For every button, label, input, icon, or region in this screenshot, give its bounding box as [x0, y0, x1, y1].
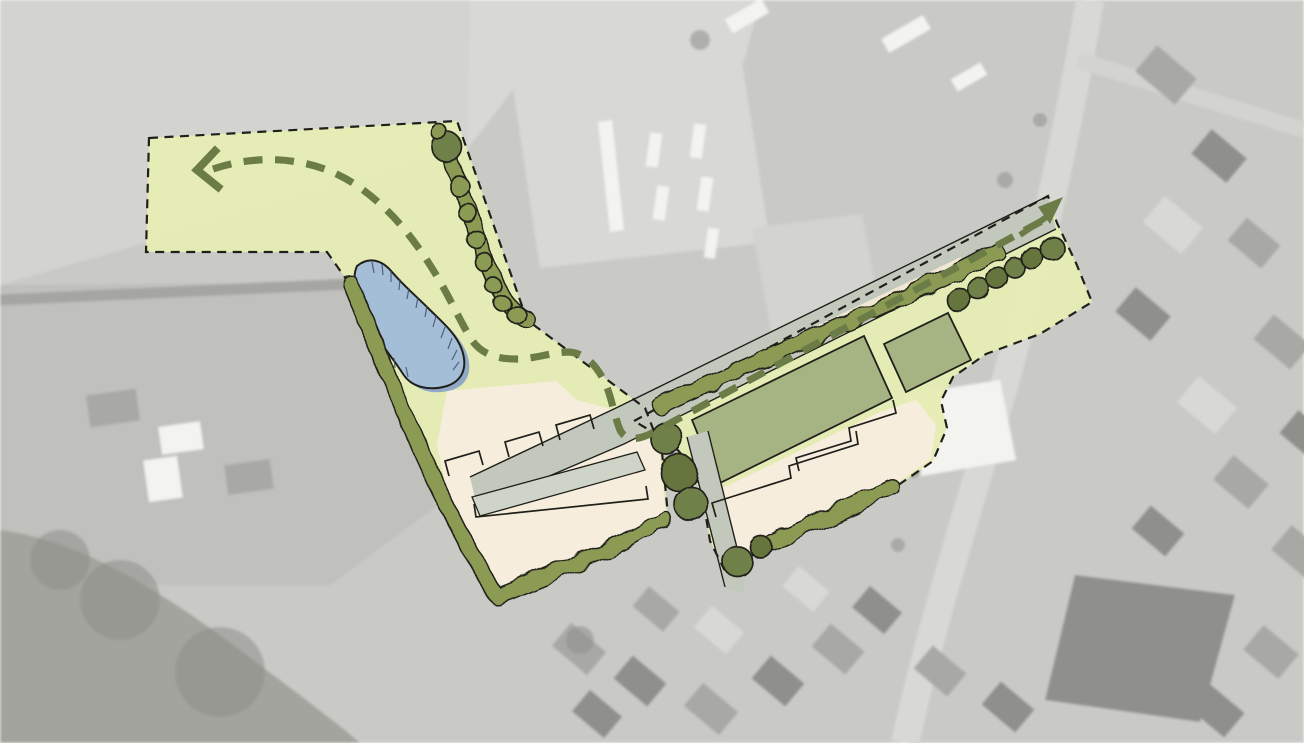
tree	[475, 253, 493, 271]
tree	[431, 124, 447, 140]
tree	[449, 176, 469, 196]
tree-branch	[722, 546, 752, 576]
tree	[494, 295, 510, 311]
tree	[485, 277, 501, 293]
tree-junction	[674, 487, 708, 521]
tree	[507, 305, 525, 323]
tree-row	[946, 287, 970, 311]
masterplan-canvas	[0, 0, 1304, 743]
tree-row	[1040, 236, 1064, 260]
tree-junction	[661, 455, 697, 491]
aerial-photo-layer	[0, 0, 1304, 743]
tree	[467, 230, 485, 248]
masterplan-svg	[0, 0, 1304, 743]
tree-branch	[750, 536, 772, 558]
tree	[459, 204, 477, 222]
aerial-warehouse-roof	[513, 62, 770, 268]
